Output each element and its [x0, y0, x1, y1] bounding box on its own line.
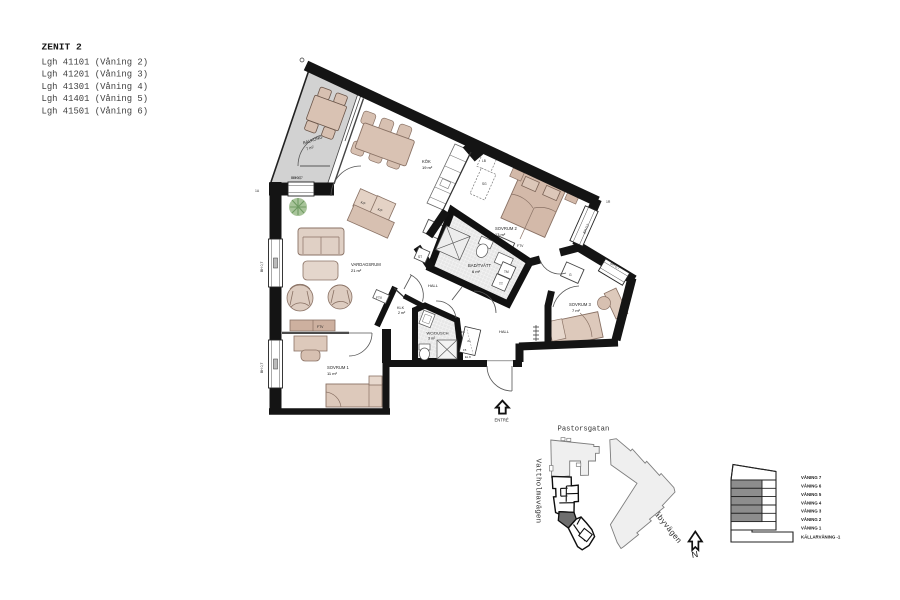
svg-text:3 m²: 3 m²	[428, 337, 436, 341]
svg-text:7 m²: 7 m²	[572, 308, 581, 313]
svg-text:11 m²: 11 m²	[327, 371, 338, 376]
svg-text:LB: LB	[482, 159, 486, 163]
svg-text:Pastorsgatan: Pastorsgatan	[558, 426, 610, 434]
svg-text:VÅNING 3: VÅNING 3	[801, 509, 822, 514]
svg-text:FTV: FTV	[317, 325, 324, 329]
svg-text:1A: 1A	[255, 189, 260, 193]
svg-text:EL 8: EL 8	[465, 355, 471, 359]
svg-text:2 m²: 2 m²	[398, 311, 406, 315]
svg-text:SH 0,7: SH 0,7	[293, 176, 303, 180]
svg-text:ZENIT 2: ZENIT 2	[42, 42, 83, 53]
svg-text:VÅNING 6: VÅNING 6	[801, 484, 822, 489]
svg-text:KLK: KLK	[397, 306, 405, 310]
svg-text:Lgh 41201 (Våning 3): Lgh 41201 (Våning 3)	[42, 70, 149, 80]
svg-text:VÅNING 7: VÅNING 7	[801, 475, 822, 480]
svg-text:VÅNING 2: VÅNING 2	[801, 517, 822, 522]
svg-text:JG: JG	[467, 339, 471, 343]
svg-text:BAD/TVÄTT: BAD/TVÄTT	[468, 263, 491, 268]
svg-text:19 m²: 19 m²	[422, 165, 433, 170]
svg-text:ST: ST	[418, 255, 422, 259]
svg-text:Lgh 41301 (Våning 4): Lgh 41301 (Våning 4)	[42, 82, 149, 92]
svg-text:21 m²: 21 m²	[351, 268, 362, 273]
svg-text:TM: TM	[504, 270, 509, 274]
svg-text:VÅNING 4: VÅNING 4	[801, 500, 822, 505]
svg-text:BH 0,7: BH 0,7	[260, 363, 264, 373]
svg-text:SOVRUM 2: SOVRUM 2	[495, 226, 518, 231]
svg-text:KÄLLARVÅNING -1: KÄLLARVÅNING -1	[801, 535, 841, 540]
svg-text:Lgh 41501 (Våning 6): Lgh 41501 (Våning 6)	[42, 106, 149, 116]
svg-text:Lgh 41401 (Våning 5): Lgh 41401 (Våning 5)	[42, 94, 149, 104]
svg-text:HALL: HALL	[428, 283, 439, 288]
svg-text:VÅNING 5: VÅNING 5	[801, 492, 822, 497]
svg-text:BH 0,7: BH 0,7	[260, 262, 264, 272]
svg-text:Vattholmavägen: Vattholmavägen	[534, 459, 542, 524]
svg-text:F5: F5	[463, 348, 467, 352]
svg-text:SOVRUM 1: SOVRUM 1	[327, 365, 350, 370]
svg-text:ENTRÉ: ENTRÉ	[495, 418, 509, 423]
svg-text:F5: F5	[462, 330, 466, 334]
svg-text:VARDAGSRUM: VARDAGSRUM	[351, 262, 381, 267]
svg-text:WC/DUSCH: WC/DUSCH	[427, 331, 449, 336]
svg-text:TT: TT	[499, 282, 503, 286]
svg-text:Lgh 41101 (Våning 2): Lgh 41101 (Våning 2)	[42, 57, 149, 67]
svg-text:FTV: FTV	[376, 296, 383, 300]
svg-text:SG: SG	[482, 182, 487, 186]
svg-text:SOVRUM 3: SOVRUM 3	[569, 302, 592, 307]
svg-text:1R: 1R	[606, 200, 611, 204]
svg-text:HALL: HALL	[499, 329, 510, 334]
svg-text:G: G	[569, 273, 572, 277]
svg-text:FTV: FTV	[517, 244, 524, 248]
svg-text:VÅNING 1: VÅNING 1	[801, 525, 822, 530]
svg-text:6 m²: 6 m²	[472, 269, 481, 274]
svg-text:KÖK: KÖK	[422, 159, 431, 164]
